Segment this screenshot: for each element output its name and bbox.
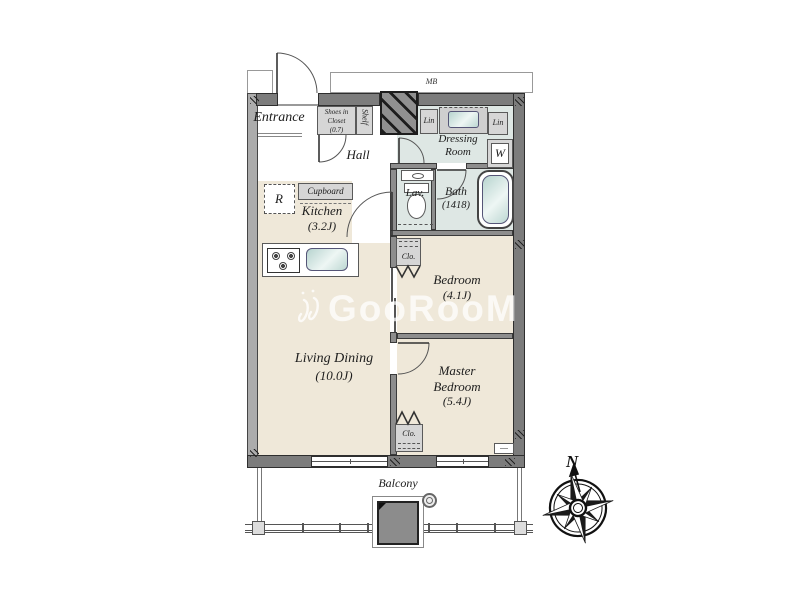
lavatory-label: Lav. bbox=[397, 187, 433, 200]
dressing-door-arc bbox=[399, 138, 424, 163]
bedroom-label: Bedroom (4.1J) bbox=[417, 272, 497, 302]
entrance-door-arc bbox=[277, 53, 317, 93]
balcony-label: Balcony bbox=[370, 476, 426, 490]
doors-overlay bbox=[0, 0, 800, 600]
kitchen-label: Kitchen (3.2J) bbox=[286, 203, 358, 233]
master-closet-bifold bbox=[396, 412, 420, 424]
master-bedroom-label: Master Bedroom (5.4J) bbox=[417, 363, 497, 409]
compass-rose: N bbox=[533, 440, 625, 560]
hall-label: Hall bbox=[336, 147, 380, 163]
floor-plan: MB Shoes in Closet (0.7) bbox=[0, 0, 800, 600]
bath-label: Bath (1418) bbox=[432, 186, 480, 212]
entrance-label: Entrance bbox=[248, 110, 310, 127]
dressing-room-label: Dressing Room bbox=[424, 133, 492, 159]
living-dining-label: Living Dining (10.0J) bbox=[274, 351, 394, 383]
meter-box-label: MB bbox=[330, 77, 533, 87]
